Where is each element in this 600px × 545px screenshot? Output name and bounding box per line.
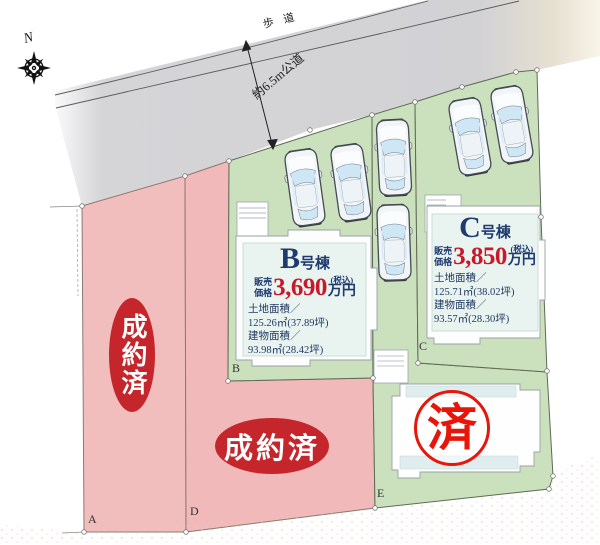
lot-c-price-prefix: 販売 価格 xyxy=(434,246,452,267)
building-area-label: 建物面積／ xyxy=(248,330,366,344)
lot-a-sold-badge: 成約済 xyxy=(109,298,155,412)
lot-e-stamp-text: 済 xyxy=(427,403,477,453)
lot-b-info-panel: B 号棟 販売 価格 3,690 (税込) 万円 土地面積／ 125.26㎡(3… xyxy=(244,243,366,355)
price-unit: 万円 xyxy=(508,254,536,269)
land-area-label: 土地面積／ xyxy=(434,272,540,286)
lot-b-letter: B xyxy=(232,361,240,376)
lot-d-sold-text: 成約済 xyxy=(224,425,320,467)
lot-c-areas: 土地面積／ 125.71㎡(38.02坪) 建物面積／ 93.57㎡(28.30… xyxy=(430,272,540,327)
lot-e-letter: E xyxy=(377,486,384,501)
car-icon xyxy=(374,203,414,282)
lot-c-title-suffix: 号棟 xyxy=(481,226,511,241)
lot-a-sold-text: 成約済 xyxy=(119,313,145,397)
lot-b-price: 販売 価格 3,690 (税込) 万円 xyxy=(254,275,356,300)
building-area-label: 建物面積／ xyxy=(434,299,540,313)
lot-d-letter: D xyxy=(190,504,199,519)
lot-a-letter: A xyxy=(88,512,97,527)
site-plan: N 歩道 約6.5m公道 A B C D E 成約済 成約済 済 B 号棟 販売… xyxy=(0,0,600,545)
lot-c-letter: C xyxy=(419,339,427,354)
car-icon xyxy=(373,118,414,197)
lot-b-areas: 土地面積／ 125.26㎡(37.89坪) 建物面積／ 93.98㎡(28.42… xyxy=(244,303,366,358)
land-area-label: 土地面積／ xyxy=(248,303,366,317)
price-label-2: 価格 xyxy=(254,288,272,298)
boundary-tick-left xyxy=(77,209,78,296)
land-area-value: 125.71㎡(38.02坪) xyxy=(434,286,540,300)
price-label-1: 販売 xyxy=(254,277,272,287)
lot-c-title-letter: C xyxy=(459,213,481,243)
lot-b-title-letter: B xyxy=(280,244,300,274)
price-label-2: 価格 xyxy=(434,257,452,267)
lot-c-price-value: 3,850 xyxy=(453,244,507,269)
lot-c-price: 販売 価格 3,850 (税込) 万円 xyxy=(434,244,536,269)
lot-c-info-panel: C 号棟 販売 価格 3,850 (税込) 万円 土地面積／ 125.71㎡(3… xyxy=(430,212,540,330)
lot-b-price-unit: (税込) 万円 xyxy=(328,276,356,300)
building-area-value: 93.98㎡(28.42坪) xyxy=(248,344,366,358)
lot-b-title-suffix: 号棟 xyxy=(300,257,330,272)
building-area-value: 93.57㎡(28.30坪) xyxy=(434,313,540,327)
price-unit: 万円 xyxy=(328,285,356,300)
lot-b-title: B 号棟 xyxy=(280,244,330,274)
lot-c-title: C 号棟 xyxy=(459,213,511,243)
lot-d-sold-badge: 成約済 xyxy=(215,418,329,474)
lot-b-price-prefix: 販売 価格 xyxy=(254,277,272,298)
lot-e-sold-stamp: 済 xyxy=(414,390,490,466)
land-area-value: 125.26㎡(37.89坪) xyxy=(248,317,366,331)
lot-c-price-unit: (税込) 万円 xyxy=(508,245,536,269)
boundary-extension-left xyxy=(50,206,84,533)
compass-icon xyxy=(16,50,53,87)
lot-b-price-value: 3,690 xyxy=(273,275,327,300)
price-label-1: 販売 xyxy=(434,246,452,256)
